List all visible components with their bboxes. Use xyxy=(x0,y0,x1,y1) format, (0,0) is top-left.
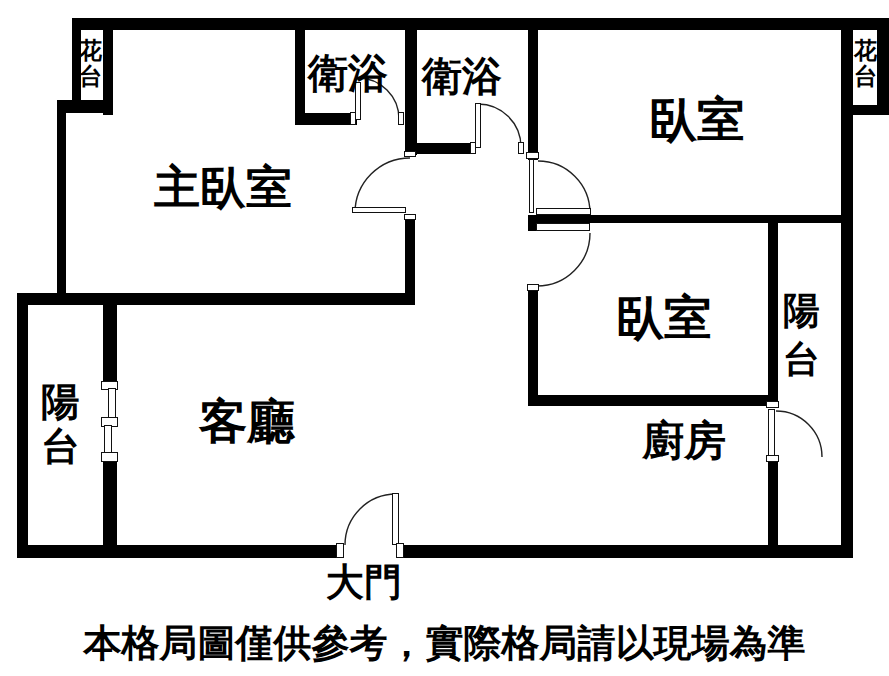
wall-balcony-left-b xyxy=(103,462,117,545)
bedroom-top-door-leaf-open xyxy=(536,208,591,215)
label-balcony-left: 陽台 xyxy=(41,380,80,470)
wall-bottom-right xyxy=(397,545,853,558)
door-arcs-layer xyxy=(0,0,889,676)
label-bathroom-1: 衛浴 xyxy=(308,53,388,93)
wall-bath1-left xyxy=(295,30,305,125)
label-balcony-right: 陽台 xyxy=(783,287,820,385)
wall-bath1-bottom xyxy=(295,113,357,125)
wall-flowerbed-right-b xyxy=(852,105,889,115)
bedroom-mid-door-leaf-open xyxy=(536,223,590,231)
wall-balcony-left-a xyxy=(103,305,117,382)
wall-bath2-right xyxy=(528,30,538,160)
label-flower-bed-left: 花台 xyxy=(79,38,102,90)
label-master-bedroom: 主臥室 xyxy=(154,164,292,210)
bathroom2-door-arc xyxy=(478,104,521,147)
wall-master-door xyxy=(405,218,415,305)
wall-left-outer xyxy=(17,293,28,558)
wall-flowerbed-right-a xyxy=(877,18,889,115)
main-door-jamb-right xyxy=(396,543,404,558)
floorplan-canvas: 主臥室 衛浴 衛浴 臥室 臥室 客廳 廚房 大門 陽台 陽台 花台 花台 本格局… xyxy=(0,0,889,676)
wall-between-baths xyxy=(405,30,417,155)
wall-top xyxy=(72,18,889,30)
wall-balcony-right-b xyxy=(768,457,778,545)
balcony-window-cap-bottom xyxy=(101,452,118,462)
bedroom-mid-door-jamb xyxy=(527,284,539,291)
kitchen-door-jamb-bottom xyxy=(766,455,779,462)
kitchen-balcony-door-arc xyxy=(776,411,822,457)
bathroom2-door-jamb-left xyxy=(470,142,476,154)
wall-bottom-left xyxy=(17,545,343,558)
wall-bedroom-top-bottom xyxy=(528,215,841,223)
wall-flowerbed-left-b xyxy=(103,18,113,115)
wall-bedroom-mid-left-b xyxy=(528,285,538,405)
master-door-jamb-bottom xyxy=(404,214,416,220)
label-flower-bed-right: 花台 xyxy=(854,38,877,90)
master-door-jamb-top xyxy=(404,151,416,157)
kitchen-balcony-door-leaf xyxy=(768,409,775,458)
bathroom2-door-jamb-right xyxy=(518,142,524,154)
main-door-arc xyxy=(345,494,396,545)
bedroom-top-door-leaf-closed xyxy=(529,159,534,213)
bedroom-mid-door-arc xyxy=(537,233,590,286)
bathroom1-door-jamb-right xyxy=(398,112,404,125)
wall-master-left xyxy=(57,108,66,298)
label-bedroom-mid-right: 臥室 xyxy=(616,294,712,342)
label-bathroom-2: 衛浴 xyxy=(422,56,502,96)
kitchen-door-jamb-top xyxy=(766,401,779,408)
bathroom1-door-jamb-left xyxy=(350,112,356,125)
bedroom-top-door-jamb xyxy=(526,152,539,159)
wall-living-top xyxy=(17,293,415,305)
wall-kitchen-top xyxy=(528,395,778,406)
label-main-door: 大門 xyxy=(326,563,402,601)
wall-balcony-right-a xyxy=(768,223,778,407)
master-bedroom-door-leaf xyxy=(352,207,406,213)
label-bedroom-top-right: 臥室 xyxy=(649,96,745,144)
bedroom-top-door-arc xyxy=(538,161,590,213)
master-bedroom-door-arc xyxy=(355,158,410,213)
main-door-leaf xyxy=(392,493,399,545)
disclaimer-text: 本格局圖僅供參考，實際格局請以現場為準 xyxy=(0,624,889,662)
label-kitchen: 廚房 xyxy=(642,420,726,462)
label-living-room: 客廳 xyxy=(199,398,295,446)
main-door-jamb-left xyxy=(336,543,344,558)
